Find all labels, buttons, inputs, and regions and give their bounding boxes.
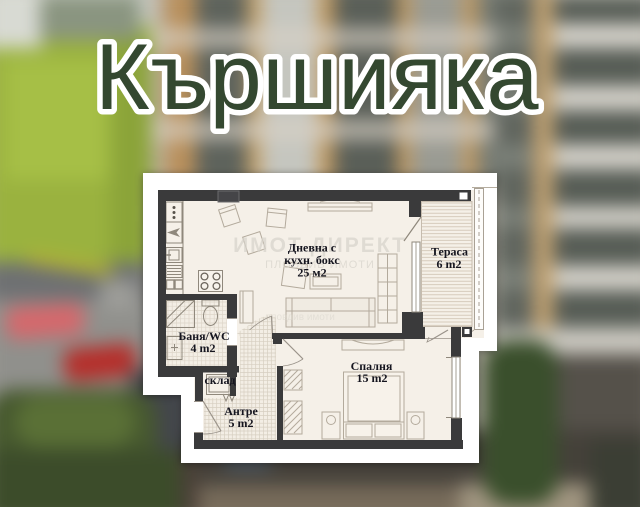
svg-text:Кършияка: Кършияка (95, 24, 539, 129)
